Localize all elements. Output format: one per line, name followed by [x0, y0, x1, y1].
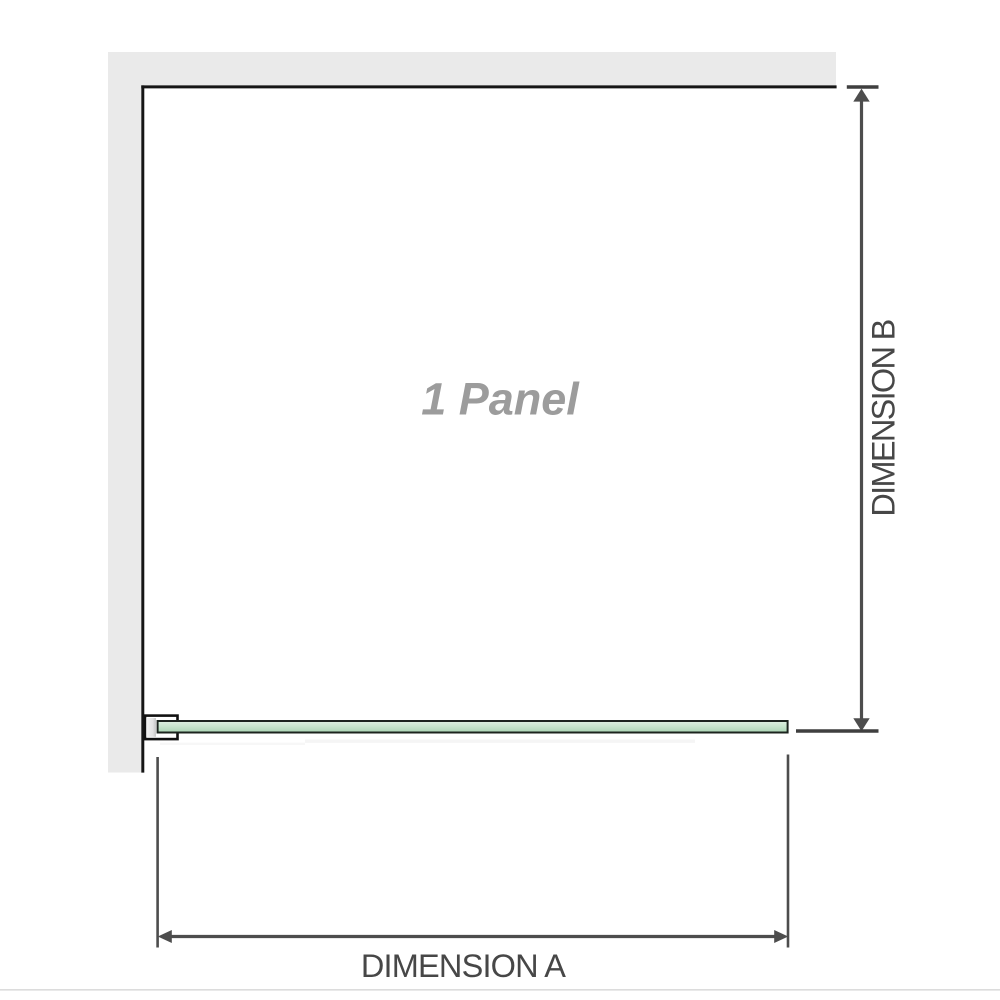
svg-text:DIMENSION A: DIMENSION A	[361, 948, 566, 984]
svg-text:DIMENSION B: DIMENSION B	[866, 320, 902, 516]
svg-text:1 Panel: 1 Panel	[421, 374, 580, 425]
